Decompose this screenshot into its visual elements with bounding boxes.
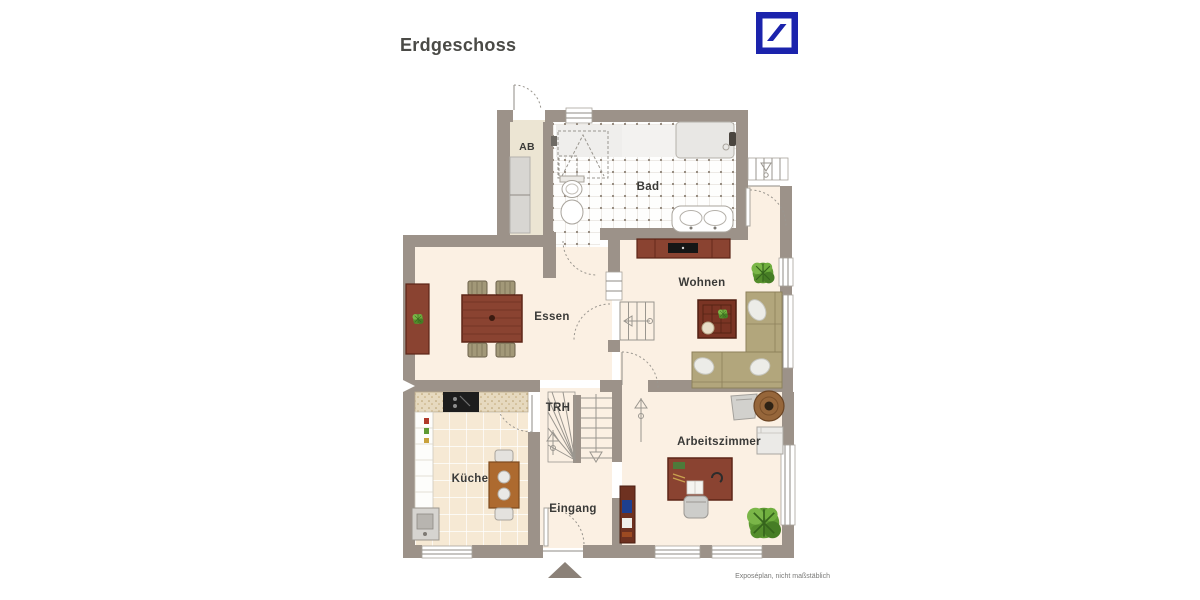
label-ab: AB: [519, 141, 535, 153]
kitchen-table: [489, 462, 519, 508]
kitchen-chair: [495, 508, 513, 520]
label-bad: Bad: [637, 181, 660, 193]
window-bad-top: [566, 108, 592, 123]
window-wohnen-right-1: [779, 258, 793, 286]
kitchen-chair: [495, 450, 513, 462]
screenshot: Erdgeschoss: [0, 0, 1200, 600]
double-sink: [672, 206, 733, 232]
bookshelf: [620, 486, 635, 543]
window-arbeitszimmer-right: [781, 445, 795, 525]
label-essen: Essen: [534, 311, 569, 323]
armchair: [731, 394, 757, 420]
window-kueche-bottom: [422, 546, 472, 558]
label-arbeitszimmer: Arbeitszimmer: [677, 436, 761, 448]
floor-plan: AB Bad Essen Wohnen Küche TRH Eingang Ar…: [0, 0, 1200, 600]
label-trh: TRH: [546, 402, 571, 414]
exterior-steps: [748, 158, 788, 180]
stair-wohnen: [620, 302, 654, 340]
coffee-table: [698, 300, 736, 338]
toilet: [560, 176, 584, 198]
tv-board: [637, 239, 730, 258]
dining-table: [462, 295, 522, 342]
label-wohnen: Wohnen: [679, 277, 726, 289]
plant: [752, 263, 775, 284]
stove: [443, 392, 479, 412]
bidet: [561, 200, 583, 224]
counter-left: [415, 412, 433, 508]
sideboard: [406, 284, 429, 354]
office-chair: [684, 496, 708, 518]
plant: [747, 508, 781, 539]
window-arbeitszimmer-bottom-1: [655, 546, 700, 558]
dining-chair: [468, 281, 487, 295]
ab-shelf: [510, 157, 530, 233]
door-ab: [514, 85, 541, 110]
entrance-arrow: [548, 562, 582, 578]
dining-chair: [468, 343, 487, 357]
sink: [412, 508, 439, 540]
window-arbeitszimmer-bottom-2: [712, 546, 762, 558]
dining-chair: [496, 343, 515, 357]
footer-note: Exposéplan, nicht maßstäblich: [666, 573, 830, 580]
label-kueche: Küche: [452, 473, 489, 485]
label-eingang: Eingang: [549, 503, 596, 515]
dining-chair: [496, 281, 515, 295]
desk: [668, 458, 732, 500]
wall-niche: [606, 272, 622, 300]
round-table: [754, 391, 784, 421]
bathtub: [676, 122, 736, 158]
